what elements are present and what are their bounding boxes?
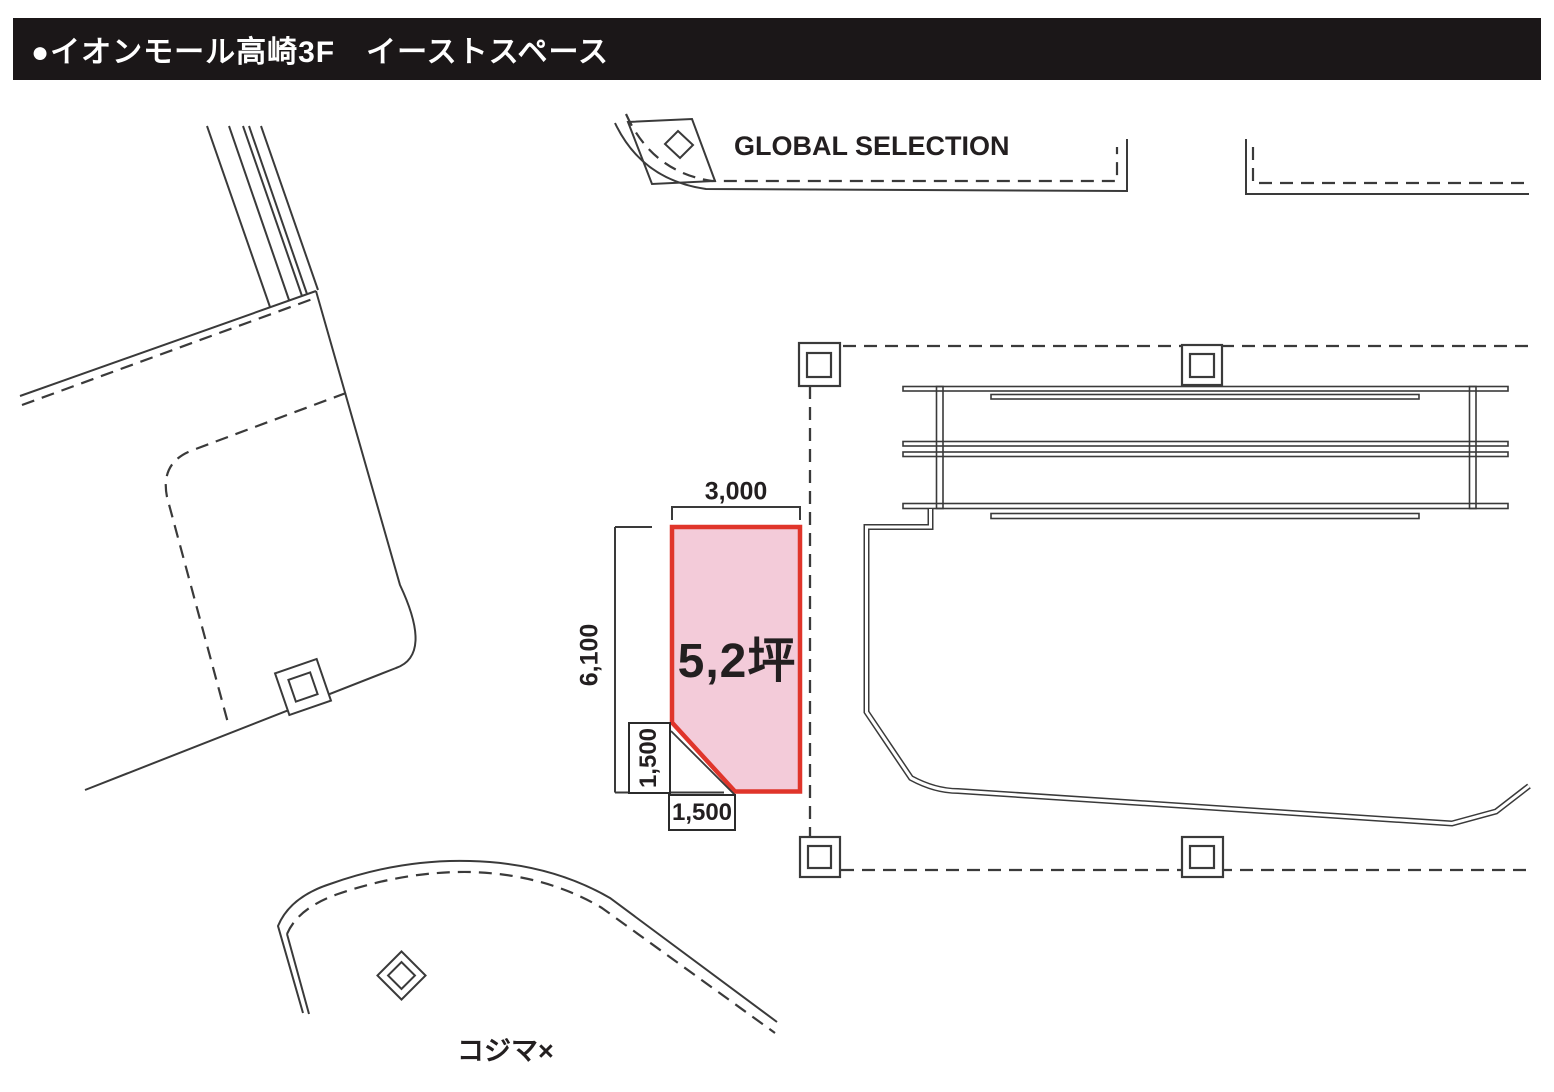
floor-plan-svg	[0, 0, 1554, 1092]
shelving-bars	[903, 387, 1508, 519]
column-bottom-left	[800, 837, 840, 877]
dimension-cut-height: 1,500	[635, 728, 663, 788]
vacant-space-area-label: 5,2坪	[678, 621, 797, 691]
column-escalator-hall	[275, 659, 331, 715]
escalator-hall	[20, 126, 416, 790]
shop-label-global-selection: GLOBAL SELECTION	[734, 131, 1010, 162]
right-store-wall	[867, 509, 1530, 824]
corridor-dashed-lines	[810, 346, 1531, 870]
dimension-cut-width: 1,500	[672, 799, 732, 827]
column-kojima	[377, 951, 425, 999]
shop-label-kojima: コジマ× ビックカメラ	[457, 964, 619, 1092]
column-top-right	[1182, 345, 1222, 385]
top-right-shop-outline	[1246, 139, 1529, 194]
column-global-selection	[628, 119, 715, 184]
column-top-left	[799, 343, 840, 386]
shop-label-kojima-line1: コジマ×	[457, 1034, 619, 1069]
dimension-left-height: 6,100	[576, 624, 605, 687]
dimension-top-width: 3,000	[705, 478, 768, 507]
floor-plan-page: ●イオンモール高崎3F イーストスペース	[0, 0, 1554, 1092]
column-bottom-right	[1182, 837, 1223, 877]
